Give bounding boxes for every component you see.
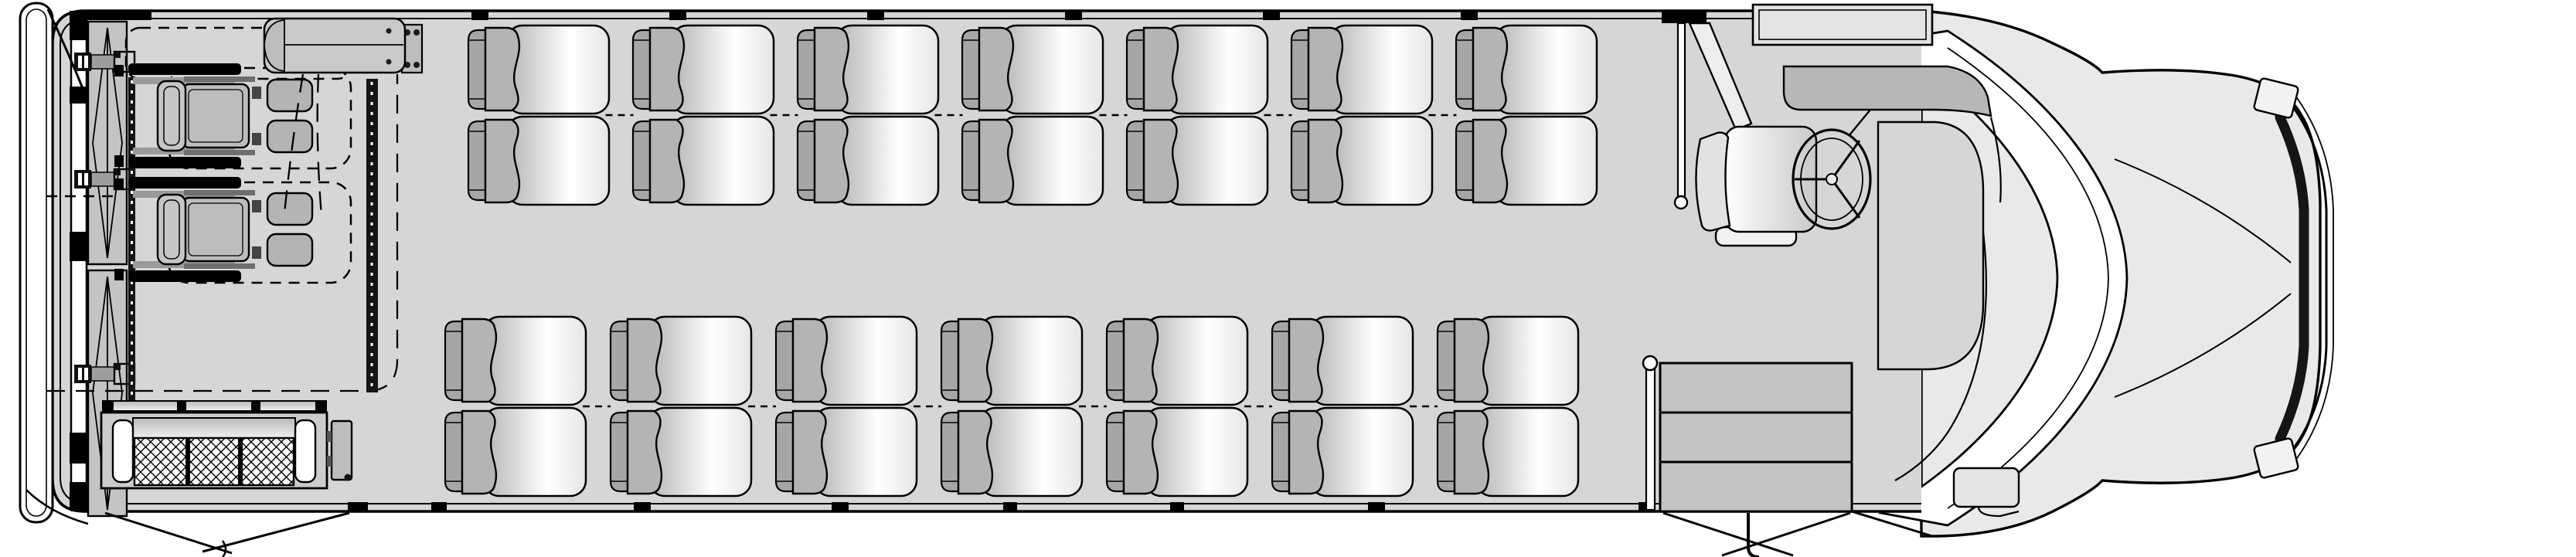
lift-bracket-slot: [78, 173, 82, 185]
bus-floorplan-canvas: [0, 0, 2576, 557]
lift-deck-crosshatch: [134, 438, 294, 485]
lift-bracket-lug: [114, 364, 121, 370]
lift-bracket-block: [74, 53, 91, 71]
driver-seat-back: [1696, 133, 1730, 231]
lift-bracket-arm: [91, 172, 114, 186]
rear-bumper: [20, 3, 53, 522]
entry-steps: [1660, 363, 1852, 511]
wall-pillar-tick: [431, 502, 447, 511]
partition-stanchion-pole: [1678, 23, 1685, 196]
wall-pillar-tick: [1003, 502, 1017, 511]
wall-pillar-tick: [1368, 502, 1385, 511]
entry-door-swing: [1663, 513, 1850, 555]
entry-step: [1660, 462, 1852, 511]
lift-bracket-lug: [114, 52, 121, 58]
entry-step: [1660, 413, 1852, 462]
wall-pillar-tick: [867, 11, 884, 20]
stanchion-pole-base: [1675, 196, 1687, 209]
driver-seat: [1696, 127, 1816, 246]
lift-bracket-arm: [91, 55, 114, 69]
lift-bracket-slot: [84, 368, 88, 380]
wall-pillar-tick: [471, 11, 488, 20]
dashboard: [1784, 66, 1991, 116]
lift-bracket-slot: [78, 56, 82, 68]
lift-door-swing: [105, 513, 349, 553]
lift-bracket-slot: [84, 173, 88, 185]
wall-pillar-tick: [348, 502, 368, 511]
wall-pillar-tick: [1170, 502, 1184, 511]
partition-wall-block: [1662, 11, 1707, 23]
entry-stanchion-pole: [1646, 366, 1655, 510]
lift-bracket-block: [74, 365, 91, 383]
lift-bracket-lug: [114, 169, 121, 175]
wall-pillar-tick: [1065, 11, 1082, 20]
wall-pillar-tick: [1461, 11, 1478, 20]
bus-floorplan-diagram: [0, 0, 2576, 557]
wheelchair-lift-platform: [101, 401, 352, 557]
engine-cover: [1878, 122, 1983, 369]
wall-pillar-tick: [1263, 11, 1280, 20]
lift-bracket-block: [74, 170, 91, 188]
wall-pillar-tick: [832, 502, 849, 511]
entry-stanchion-top: [1643, 356, 1657, 370]
lift-pump-unit: [327, 421, 352, 481]
wall-pillar-tick: [669, 11, 686, 20]
entry-door-leaf: [1748, 513, 1759, 557]
lift-bracket-slot: [78, 368, 82, 380]
lift-bracket-slot: [84, 56, 88, 68]
lift-bracket-arm: [91, 367, 114, 381]
wall-pillar-tick: [634, 502, 651, 511]
curb-side-mirror: [1954, 468, 2019, 507]
entry-step: [1660, 363, 1852, 413]
